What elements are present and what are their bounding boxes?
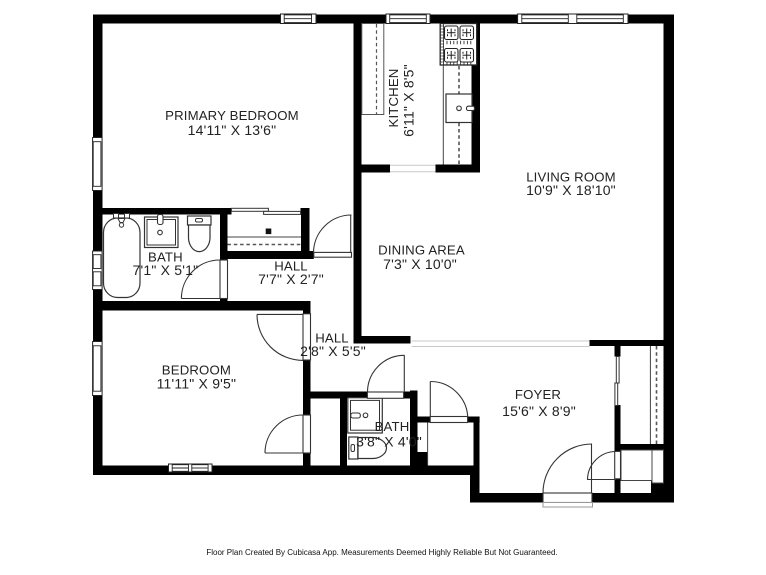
svg-text:15'6" X 8'9": 15'6" X 8'9" [502, 403, 576, 419]
svg-text:PRIMARY BEDROOM: PRIMARY BEDROOM [165, 108, 299, 123]
svg-text:14'11" X 13'6": 14'11" X 13'6" [188, 122, 277, 138]
svg-text:10'9" X 18'10": 10'9" X 18'10" [526, 182, 616, 198]
svg-text:FOYER: FOYER [515, 387, 561, 402]
svg-text:3'8" X 4'0": 3'8" X 4'0" [356, 434, 422, 450]
svg-text:BATH: BATH [375, 419, 410, 434]
svg-text:KITCHEN: KITCHEN [386, 69, 401, 128]
svg-text:7'1" X 5'1": 7'1" X 5'1" [133, 262, 199, 278]
svg-text:7'3" X 10'0": 7'3" X 10'0" [383, 256, 457, 272]
svg-text:Floor Plan Created By Cubicasa: Floor Plan Created By Cubicasa App. Meas… [206, 548, 557, 557]
svg-text:11'11" X 9'5": 11'11" X 9'5" [157, 376, 237, 392]
svg-text:6'11" X 8'5": 6'11" X 8'5" [401, 64, 417, 137]
svg-text:2'8" X 5'5": 2'8" X 5'5" [300, 343, 366, 359]
svg-text:7'7" X 2'7": 7'7" X 2'7" [258, 271, 324, 287]
